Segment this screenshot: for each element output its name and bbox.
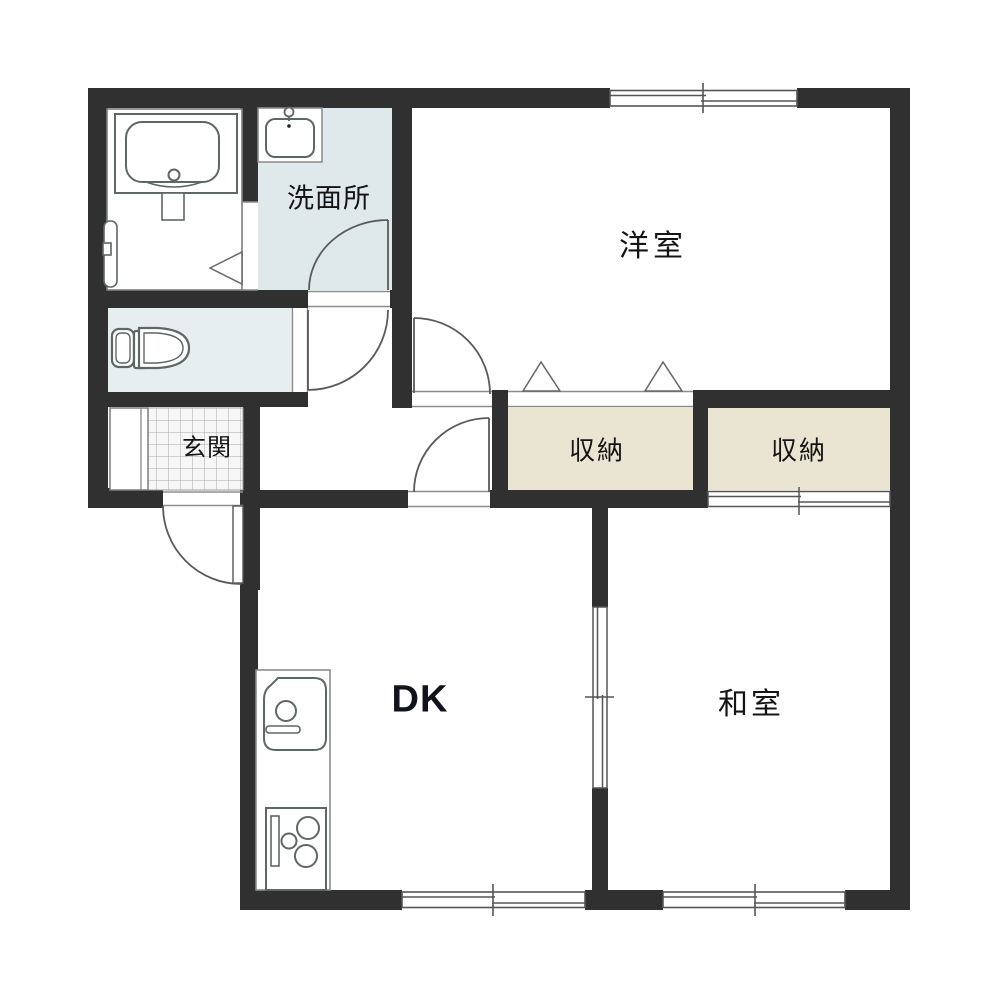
- folding-door-triangle: [523, 362, 560, 391]
- kitchen-sink-icon: [264, 678, 326, 750]
- folding-door-triangle: [645, 362, 682, 391]
- door-entrance: [163, 506, 243, 584]
- wall: [890, 88, 910, 910]
- wall: [88, 392, 308, 407]
- wall: [88, 488, 163, 508]
- japanese-room-label: 和室: [718, 679, 784, 723]
- wall: [585, 890, 663, 910]
- washbasin-icon: [258, 108, 322, 163]
- dk-label: DK: [392, 679, 449, 722]
- window-western-room-top: [610, 83, 797, 113]
- bathroom-window: [103, 221, 117, 287]
- western-room-label: 洋室: [619, 221, 687, 265]
- bathroom: [103, 109, 242, 290]
- stove-icon: [266, 808, 326, 890]
- shower-stand: [162, 193, 184, 220]
- window-japanese-room-bottom: [663, 884, 845, 916]
- door-western-room: [414, 318, 490, 394]
- toilet-icon: [112, 328, 189, 368]
- sliding-door-dk-japanese-room: [585, 607, 614, 788]
- sliding-doors: [585, 487, 890, 788]
- kitchen: [256, 670, 330, 890]
- closet-right-label: 収納: [771, 431, 827, 468]
- wall: [845, 890, 910, 910]
- wall: [258, 490, 408, 508]
- wall: [240, 890, 402, 910]
- door-toilet: [308, 310, 388, 390]
- shoe-cabinet: [110, 408, 148, 490]
- door-dk: [414, 418, 489, 492]
- floor-plan-drawing: [0, 0, 1000, 1000]
- floor-plan: 洗面所 玄関 洋室 収納 収納 DK 和室: [0, 0, 1000, 1000]
- window-dk-bottom: [402, 884, 585, 916]
- wall: [88, 290, 308, 308]
- bathtub-icon: [115, 114, 237, 193]
- wall: [592, 503, 608, 607]
- folding-door-markers: [523, 362, 682, 391]
- closet-left-label: 収納: [569, 431, 625, 468]
- wall: [392, 88, 412, 408]
- washroom-label: 洗面所: [287, 177, 371, 216]
- wall: [88, 88, 610, 108]
- sliding-door-closet-right: [708, 487, 890, 515]
- entrance-label: 玄関: [182, 428, 232, 463]
- wall: [592, 788, 608, 890]
- wall: [708, 390, 890, 408]
